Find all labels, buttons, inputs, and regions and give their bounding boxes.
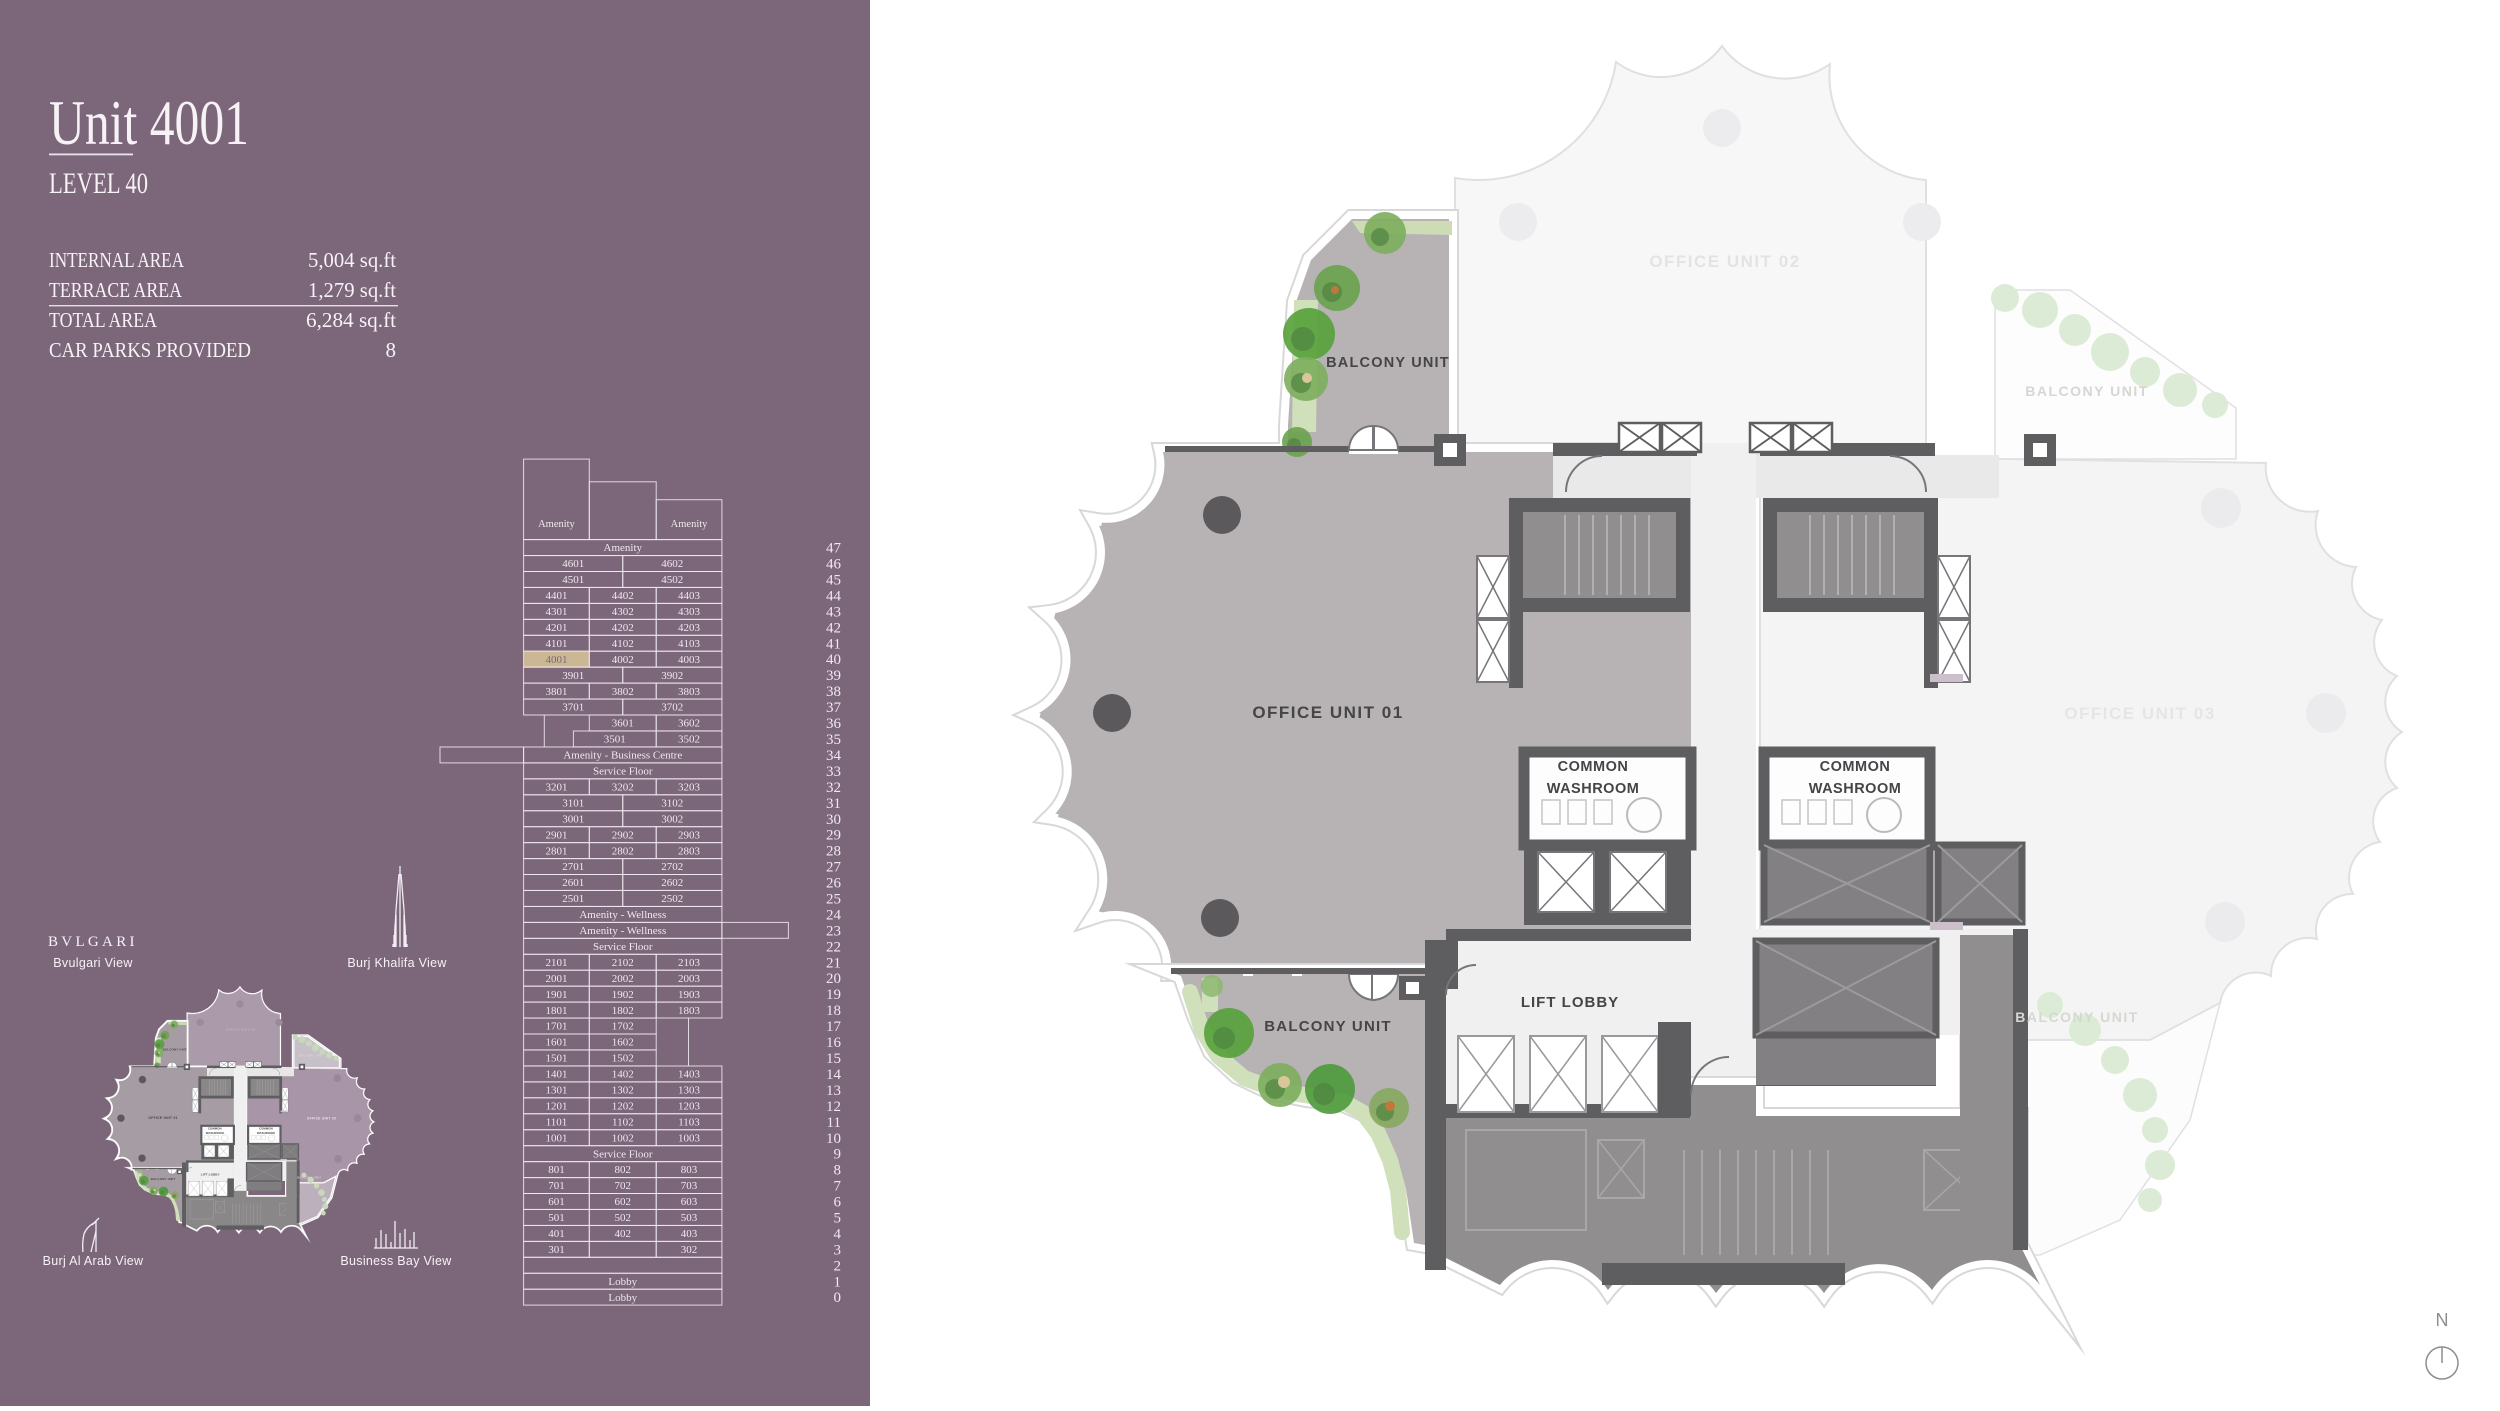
svg-text:5,004 sq.ft: 5,004 sq.ft bbox=[308, 248, 396, 272]
svg-text:3702: 3702 bbox=[661, 702, 683, 714]
svg-text:30: 30 bbox=[826, 812, 841, 828]
svg-text:3801: 3801 bbox=[546, 686, 568, 698]
svg-text:4102: 4102 bbox=[612, 638, 634, 650]
svg-text:1202: 1202 bbox=[612, 1100, 634, 1112]
svg-text:1201: 1201 bbox=[546, 1100, 568, 1112]
svg-text:4101: 4101 bbox=[546, 638, 568, 650]
svg-text:7: 7 bbox=[834, 1179, 842, 1195]
svg-text:31: 31 bbox=[826, 796, 841, 812]
svg-text:302: 302 bbox=[681, 1244, 698, 1256]
svg-text:25: 25 bbox=[826, 892, 841, 908]
svg-text:0: 0 bbox=[834, 1290, 842, 1306]
svg-text:801: 801 bbox=[548, 1164, 565, 1176]
svg-text:9: 9 bbox=[834, 1147, 842, 1163]
svg-text:4: 4 bbox=[834, 1227, 842, 1243]
svg-text:Amenity - Wellness: Amenity - Wellness bbox=[579, 925, 666, 937]
svg-text:2702: 2702 bbox=[661, 861, 683, 873]
svg-text:3202: 3202 bbox=[612, 782, 634, 794]
svg-text:2101: 2101 bbox=[546, 957, 568, 969]
svg-text:22: 22 bbox=[826, 939, 841, 955]
svg-text:BALCONY UNIT: BALCONY UNIT bbox=[163, 1048, 187, 1052]
svg-text:WASHROOM: WASHROOM bbox=[206, 1131, 225, 1135]
svg-text:43: 43 bbox=[826, 604, 841, 620]
svg-text:LIFT LOBBY: LIFT LOBBY bbox=[1521, 994, 1619, 1011]
svg-text:1101: 1101 bbox=[546, 1116, 568, 1128]
svg-text:701: 701 bbox=[548, 1180, 565, 1192]
svg-text:Amenity - Business Centre: Amenity - Business Centre bbox=[563, 750, 682, 762]
svg-text:WASHROOM: WASHROOM bbox=[257, 1131, 276, 1135]
svg-text:1102: 1102 bbox=[612, 1116, 634, 1128]
svg-text:803: 803 bbox=[681, 1164, 698, 1176]
svg-text:WASHROOM: WASHROOM bbox=[1547, 781, 1640, 797]
svg-text:1001: 1001 bbox=[546, 1132, 568, 1144]
svg-text:21: 21 bbox=[826, 955, 841, 971]
svg-text:4202: 4202 bbox=[612, 622, 634, 634]
svg-text:3901: 3901 bbox=[562, 670, 584, 682]
svg-text:2001: 2001 bbox=[546, 973, 568, 985]
svg-text:26: 26 bbox=[826, 876, 842, 892]
svg-text:1003: 1003 bbox=[678, 1132, 701, 1144]
svg-text:1802: 1802 bbox=[612, 1005, 634, 1017]
svg-text:44: 44 bbox=[826, 589, 842, 605]
svg-text:BALCONY UNIT: BALCONY UNIT bbox=[1326, 355, 1450, 371]
svg-text:1801: 1801 bbox=[546, 1005, 568, 1017]
svg-text:14: 14 bbox=[826, 1067, 842, 1083]
svg-text:4303: 4303 bbox=[678, 606, 701, 618]
svg-text:601: 601 bbox=[548, 1196, 565, 1208]
svg-text:20: 20 bbox=[826, 971, 841, 987]
svg-text:403: 403 bbox=[681, 1228, 698, 1240]
svg-text:8: 8 bbox=[834, 1163, 842, 1179]
svg-text:5: 5 bbox=[834, 1211, 842, 1227]
svg-text:3502: 3502 bbox=[678, 734, 700, 746]
svg-text:42: 42 bbox=[826, 620, 841, 636]
svg-text:3001: 3001 bbox=[562, 813, 584, 825]
svg-text:OFFICE UNIT 02: OFFICE UNIT 02 bbox=[226, 1028, 255, 1032]
svg-text:3902: 3902 bbox=[661, 670, 683, 682]
svg-text:Amenity: Amenity bbox=[671, 519, 708, 530]
svg-text:TOTAL AREA: TOTAL AREA bbox=[49, 308, 158, 332]
svg-text:24: 24 bbox=[826, 908, 842, 924]
svg-text:Bvulgari View: Bvulgari View bbox=[53, 956, 133, 970]
svg-text:COMMON: COMMON bbox=[259, 1126, 273, 1130]
svg-text:3102: 3102 bbox=[661, 797, 683, 809]
svg-text:703: 703 bbox=[681, 1180, 698, 1192]
svg-text:23: 23 bbox=[826, 923, 841, 939]
svg-text:LEVEL 40: LEVEL 40 bbox=[49, 167, 148, 200]
svg-text:4201: 4201 bbox=[546, 622, 568, 634]
svg-text:3: 3 bbox=[834, 1242, 842, 1258]
svg-text:4002: 4002 bbox=[612, 654, 634, 666]
svg-text:BALCONY UNIT: BALCONY UNIT bbox=[2015, 1009, 2139, 1025]
svg-text:37: 37 bbox=[826, 700, 842, 716]
svg-text:Amenity: Amenity bbox=[538, 519, 575, 530]
svg-text:Lobby: Lobby bbox=[608, 1276, 637, 1288]
svg-text:15: 15 bbox=[826, 1051, 841, 1067]
svg-text:2102: 2102 bbox=[612, 957, 634, 969]
svg-text:33: 33 bbox=[826, 764, 841, 780]
svg-text:1502: 1502 bbox=[612, 1053, 634, 1065]
svg-text:3101: 3101 bbox=[562, 797, 584, 809]
svg-text:BALCONY UNIT: BALCONY UNIT bbox=[2025, 383, 2149, 399]
svg-text:N: N bbox=[2436, 1310, 2449, 1330]
svg-text:1901: 1901 bbox=[546, 989, 568, 1001]
svg-text:1903: 1903 bbox=[678, 989, 701, 1001]
svg-text:702: 702 bbox=[615, 1180, 632, 1192]
svg-text:OFFICE UNIT 01: OFFICE UNIT 01 bbox=[148, 1116, 177, 1120]
svg-text:WASHROOM: WASHROOM bbox=[1809, 781, 1902, 797]
svg-text:18: 18 bbox=[826, 1003, 841, 1019]
svg-text:COMMON: COMMON bbox=[208, 1126, 222, 1130]
svg-text:1602: 1602 bbox=[612, 1037, 634, 1049]
svg-text:2501: 2501 bbox=[562, 893, 584, 905]
svg-text:3701: 3701 bbox=[562, 702, 584, 714]
svg-text:Lobby: Lobby bbox=[608, 1292, 637, 1304]
svg-text:12: 12 bbox=[826, 1099, 841, 1115]
svg-text:3803: 3803 bbox=[678, 686, 701, 698]
svg-text:3002: 3002 bbox=[661, 813, 683, 825]
svg-text:3602: 3602 bbox=[678, 718, 700, 730]
svg-text:16: 16 bbox=[826, 1035, 842, 1051]
svg-text:Service Floor: Service Floor bbox=[593, 941, 653, 953]
svg-text:502: 502 bbox=[615, 1212, 632, 1224]
svg-text:6,284 sq.ft: 6,284 sq.ft bbox=[306, 308, 396, 332]
svg-text:2: 2 bbox=[834, 1258, 842, 1274]
svg-text:1301: 1301 bbox=[546, 1085, 568, 1097]
svg-text:INTERNAL AREA: INTERNAL AREA bbox=[49, 248, 185, 272]
svg-text:1203: 1203 bbox=[678, 1100, 701, 1112]
svg-text:4602: 4602 bbox=[661, 558, 683, 570]
svg-text:CAR PARKS PROVIDED: CAR PARKS PROVIDED bbox=[49, 338, 251, 362]
svg-text:45: 45 bbox=[826, 573, 841, 589]
svg-text:36: 36 bbox=[826, 716, 842, 732]
svg-text:2601: 2601 bbox=[562, 877, 584, 889]
svg-text:2602: 2602 bbox=[661, 877, 683, 889]
svg-text:602: 602 bbox=[615, 1196, 632, 1208]
svg-text:29: 29 bbox=[826, 828, 841, 844]
svg-text:COMMON: COMMON bbox=[1820, 759, 1891, 775]
svg-text:Service Floor: Service Floor bbox=[593, 766, 653, 778]
svg-text:301: 301 bbox=[548, 1244, 565, 1256]
svg-text:1: 1 bbox=[834, 1274, 842, 1290]
svg-text:OFFICE UNIT 01: OFFICE UNIT 01 bbox=[1252, 703, 1403, 722]
svg-text:BALCONY UNIT: BALCONY UNIT bbox=[1264, 1018, 1391, 1035]
svg-text:47: 47 bbox=[826, 541, 842, 557]
svg-text:4402: 4402 bbox=[612, 590, 634, 602]
svg-text:3601: 3601 bbox=[612, 718, 634, 730]
svg-text:4302: 4302 bbox=[612, 606, 634, 618]
svg-text:OFFICE UNIT 02: OFFICE UNIT 02 bbox=[1649, 252, 1800, 271]
svg-text:1002: 1002 bbox=[612, 1132, 634, 1144]
svg-text:1701: 1701 bbox=[546, 1021, 568, 1033]
svg-text:402: 402 bbox=[615, 1228, 632, 1240]
svg-text:2902: 2902 bbox=[612, 829, 634, 841]
svg-text:Service Floor: Service Floor bbox=[593, 1148, 653, 1160]
svg-text:4103: 4103 bbox=[678, 638, 701, 650]
svg-text:802: 802 bbox=[615, 1164, 632, 1176]
svg-text:503: 503 bbox=[681, 1212, 698, 1224]
svg-text:19: 19 bbox=[826, 987, 841, 1003]
svg-text:2901: 2901 bbox=[546, 829, 568, 841]
svg-text:1302: 1302 bbox=[612, 1085, 634, 1097]
svg-text:13: 13 bbox=[826, 1083, 841, 1099]
svg-text:2103: 2103 bbox=[678, 957, 701, 969]
svg-text:8: 8 bbox=[386, 338, 397, 362]
svg-text:1702: 1702 bbox=[612, 1021, 634, 1033]
svg-text:LIFT LOBBY: LIFT LOBBY bbox=[201, 1173, 220, 1177]
svg-text:2003: 2003 bbox=[678, 973, 701, 985]
svg-text:41: 41 bbox=[826, 636, 841, 652]
svg-text:3203: 3203 bbox=[678, 782, 701, 794]
svg-text:38: 38 bbox=[826, 684, 841, 700]
svg-text:27: 27 bbox=[826, 860, 842, 876]
svg-text:603: 603 bbox=[681, 1196, 698, 1208]
svg-text:1902: 1902 bbox=[612, 989, 634, 1001]
svg-text:1403: 1403 bbox=[678, 1069, 701, 1081]
svg-text:1103: 1103 bbox=[678, 1116, 700, 1128]
svg-text:34: 34 bbox=[826, 748, 842, 764]
svg-text:1803: 1803 bbox=[678, 1005, 701, 1017]
svg-text:COMMON: COMMON bbox=[1558, 759, 1629, 775]
svg-text:46: 46 bbox=[826, 557, 842, 573]
svg-text:2802: 2802 bbox=[612, 845, 634, 857]
svg-text:11: 11 bbox=[827, 1115, 841, 1131]
svg-text:32: 32 bbox=[826, 780, 841, 796]
svg-text:4301: 4301 bbox=[546, 606, 568, 618]
svg-text:OFFICE UNIT 03: OFFICE UNIT 03 bbox=[2064, 704, 2215, 723]
svg-text:BALCONY UNIT: BALCONY UNIT bbox=[151, 1177, 176, 1181]
svg-text:35: 35 bbox=[826, 732, 841, 748]
svg-text:28: 28 bbox=[826, 844, 841, 860]
svg-text:40: 40 bbox=[826, 652, 841, 668]
svg-text:3802: 3802 bbox=[612, 686, 634, 698]
svg-text:Burj Al Arab View: Burj Al Arab View bbox=[43, 1254, 144, 1268]
svg-text:1402: 1402 bbox=[612, 1069, 634, 1081]
svg-text:Amenity - Wellness: Amenity - Wellness bbox=[579, 909, 666, 921]
svg-text:1501: 1501 bbox=[546, 1053, 568, 1065]
svg-text:2801: 2801 bbox=[546, 845, 568, 857]
svg-text:Burj Khalifa View: Burj Khalifa View bbox=[347, 956, 447, 970]
svg-text:3201: 3201 bbox=[546, 782, 568, 794]
svg-text:4601: 4601 bbox=[562, 558, 584, 570]
svg-text:1601: 1601 bbox=[546, 1037, 568, 1049]
svg-text:Amenity: Amenity bbox=[604, 542, 643, 554]
svg-text:TERRACE AREA: TERRACE AREA bbox=[49, 278, 183, 302]
svg-text:4501: 4501 bbox=[562, 574, 584, 586]
svg-text:Business Bay View: Business Bay View bbox=[340, 1254, 452, 1268]
svg-text:4003: 4003 bbox=[678, 654, 701, 666]
svg-text:401: 401 bbox=[548, 1228, 565, 1240]
svg-text:4203: 4203 bbox=[678, 622, 701, 634]
svg-text:10: 10 bbox=[826, 1131, 841, 1147]
svg-text:6: 6 bbox=[834, 1195, 842, 1211]
svg-text:2502: 2502 bbox=[661, 893, 683, 905]
svg-text:2903: 2903 bbox=[678, 829, 701, 841]
svg-text:1303: 1303 bbox=[678, 1085, 701, 1097]
svg-text:1401: 1401 bbox=[546, 1069, 568, 1081]
svg-text:OFFICE UNIT 03: OFFICE UNIT 03 bbox=[307, 1116, 336, 1120]
svg-text:501: 501 bbox=[548, 1212, 565, 1224]
svg-text:2803: 2803 bbox=[678, 845, 701, 857]
svg-text:3501: 3501 bbox=[604, 734, 626, 746]
svg-text:39: 39 bbox=[826, 668, 841, 684]
svg-text:2701: 2701 bbox=[562, 861, 584, 873]
svg-text:17: 17 bbox=[826, 1019, 842, 1035]
svg-text:4401: 4401 bbox=[546, 590, 568, 602]
svg-text:BVLGARI: BVLGARI bbox=[48, 934, 140, 950]
svg-text:4001: 4001 bbox=[546, 654, 568, 666]
svg-text:Unit 4001: Unit 4001 bbox=[49, 87, 249, 158]
svg-text:2002: 2002 bbox=[612, 973, 634, 985]
svg-text:4502: 4502 bbox=[661, 574, 683, 586]
svg-text:4403: 4403 bbox=[678, 590, 701, 602]
svg-text:1,279 sq.ft: 1,279 sq.ft bbox=[308, 278, 396, 302]
